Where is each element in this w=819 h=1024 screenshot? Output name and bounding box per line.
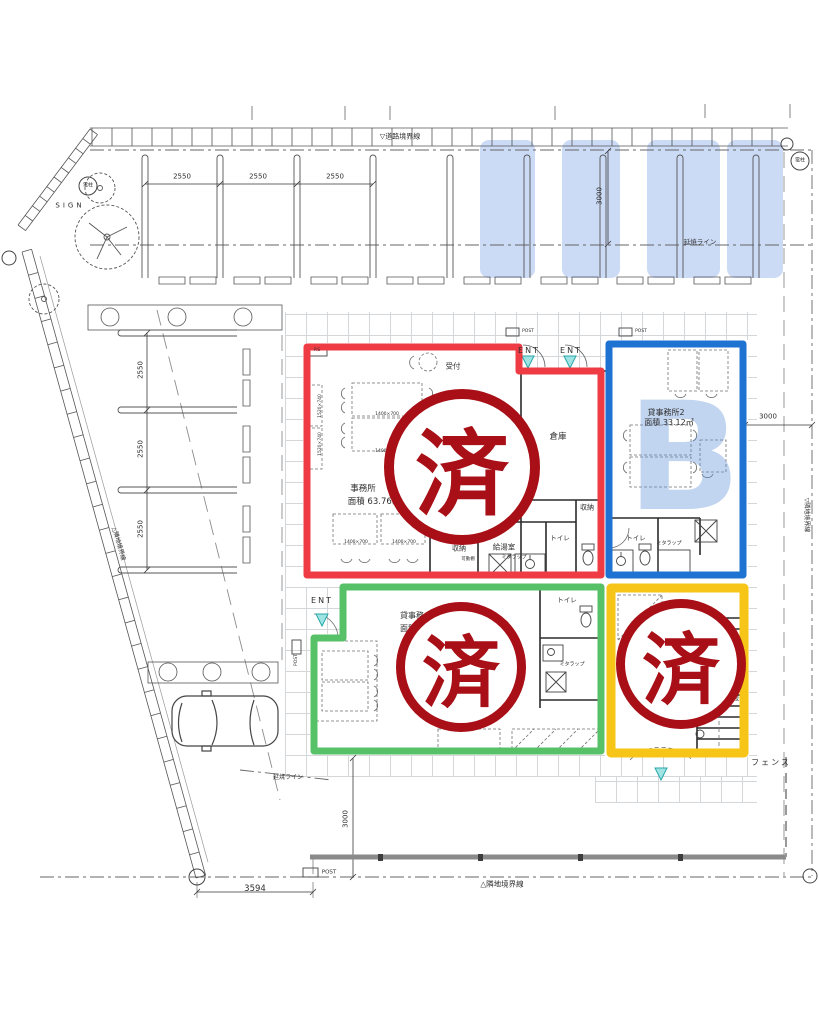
dim-3000-right: 3000 (759, 414, 777, 421)
storage-label-1: 収納 (580, 505, 594, 512)
fence-line (310, 757, 786, 861)
post-label-1: POST (522, 330, 534, 335)
ent-label-2: ENT (560, 347, 582, 355)
dim-2550-left-1: 2550 (138, 361, 145, 379)
dim-3000-bottom: 3000 (343, 810, 350, 828)
post-label-2: POST (635, 330, 647, 335)
car (172, 691, 278, 751)
wheel-stops-left (243, 349, 250, 563)
post-label-3: POST (295, 654, 300, 666)
sold-stamp-text: 済 (642, 608, 720, 720)
neighbor-boundary-label-bottom: △隣地境界線 (480, 880, 523, 888)
site-plan-page: B ▽道路境界線 延焼ライン 延焼ライン △隣地境界線 ▽隣地境界線 △隣地境界… (0, 0, 819, 1024)
fire-line-label-top: 延焼ライン (684, 239, 717, 246)
dim-2550-top-3: 2550 (326, 174, 344, 181)
neighbor-boundary-label-right: ▽隣地境界線 (803, 498, 809, 533)
ps-label: P.S (314, 349, 320, 354)
dim-2550-left-2: 2550 (138, 440, 145, 458)
fire-line-label-bottom: 延焼ライン (273, 775, 303, 781)
sold-stamp-text: 済 (415, 399, 509, 535)
hedge-planters (88, 305, 282, 683)
parking-stalls-top (142, 155, 759, 278)
dim-2550-top-1: 2550 (173, 174, 191, 181)
road-boundary-label: ▽道路境界線 (380, 134, 420, 141)
dim-3594: 3594 (244, 885, 266, 894)
fence-label: フェンス (751, 759, 791, 767)
ent-label-3: ENT (311, 597, 333, 605)
table-dim-1: 1400×700 (375, 413, 399, 418)
kitchenette-label: 給湯室 (493, 543, 516, 551)
cabinet-dim-1: 1520×740 (319, 394, 324, 418)
dim-2550-top-2: 2550 (249, 174, 267, 181)
dim-2550-left-3: 2550 (138, 520, 145, 538)
trap-label-green: ミタラップ (559, 663, 584, 668)
toilet-label-green: トイレ (557, 597, 577, 604)
reception-label: 受付 (446, 362, 461, 370)
trap-label-blue: ミタラップ (656, 542, 681, 547)
sign-label: SIGN (55, 203, 84, 210)
sold-stamp-office: 済 (384, 389, 540, 545)
toilet-label-blue: トイレ (626, 535, 646, 542)
sold-stamp-text: 済 (422, 611, 500, 723)
post-label-4: POST (322, 870, 337, 876)
cabinet-dim-2: 1520×740 (319, 432, 324, 456)
shelf-label-2: 可動棚 (461, 558, 475, 563)
storage-label-2: 収納 (452, 546, 466, 553)
survey-ticks (252, 104, 790, 120)
ent-label-1: ENT (518, 347, 540, 355)
office-name-label: 事務所 (350, 485, 376, 494)
wheel-stops-top (159, 277, 751, 284)
sold-stamp-stair-unit: 済 (616, 599, 746, 729)
boundary-hatch-nw (18, 129, 98, 231)
rental2-name-label: 貸事務所2 (647, 409, 684, 417)
road-sidewalk (90, 128, 788, 146)
utility-pole-label-right: 電柱 (795, 159, 805, 164)
rental2-area-label: 面積 33.12㎡ (644, 419, 693, 427)
trap-label-red: ミタラップ (501, 556, 526, 561)
table-dim-4: 1400×700 (392, 541, 416, 546)
toilet-label-red: トイレ (550, 535, 570, 542)
warehouse-label: 倉庫 (549, 433, 566, 442)
unit-b-watermark: B (627, 371, 741, 545)
sold-stamp-rental1: 済 (396, 602, 526, 732)
boundary-hatch-west (22, 249, 206, 878)
table-dim-3: 1400×700 (344, 541, 368, 546)
dim-3000-top: 3000 (597, 187, 604, 205)
utility-pole-label-left: 電柱 (83, 184, 93, 189)
